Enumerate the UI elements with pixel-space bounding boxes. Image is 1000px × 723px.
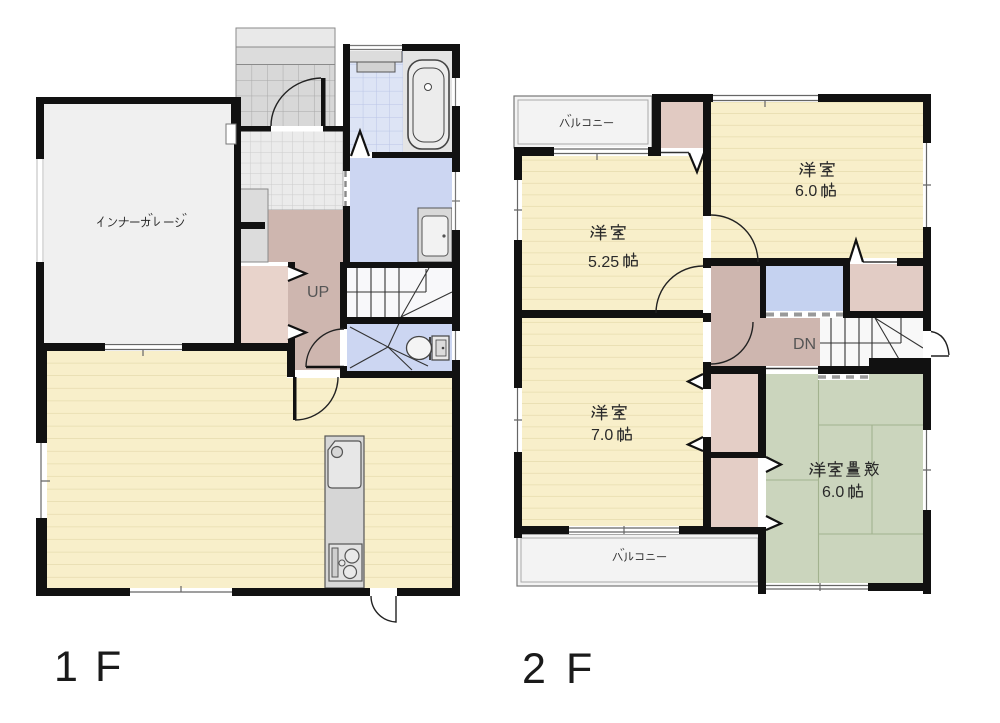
svg-text:F: F bbox=[566, 645, 592, 693]
svg-text:7.0: 7.0 bbox=[591, 427, 613, 444]
svg-text:5.25: 5.25 bbox=[588, 254, 619, 271]
svg-text:1: 1 bbox=[54, 643, 78, 691]
svg-text:UP: UP bbox=[307, 284, 329, 301]
svg-text:6.0: 6.0 bbox=[822, 484, 844, 501]
svg-text:2: 2 bbox=[522, 645, 546, 693]
svg-text:6.0: 6.0 bbox=[795, 183, 817, 200]
svg-text:F: F bbox=[95, 643, 121, 691]
svg-text:DN: DN bbox=[793, 336, 816, 353]
